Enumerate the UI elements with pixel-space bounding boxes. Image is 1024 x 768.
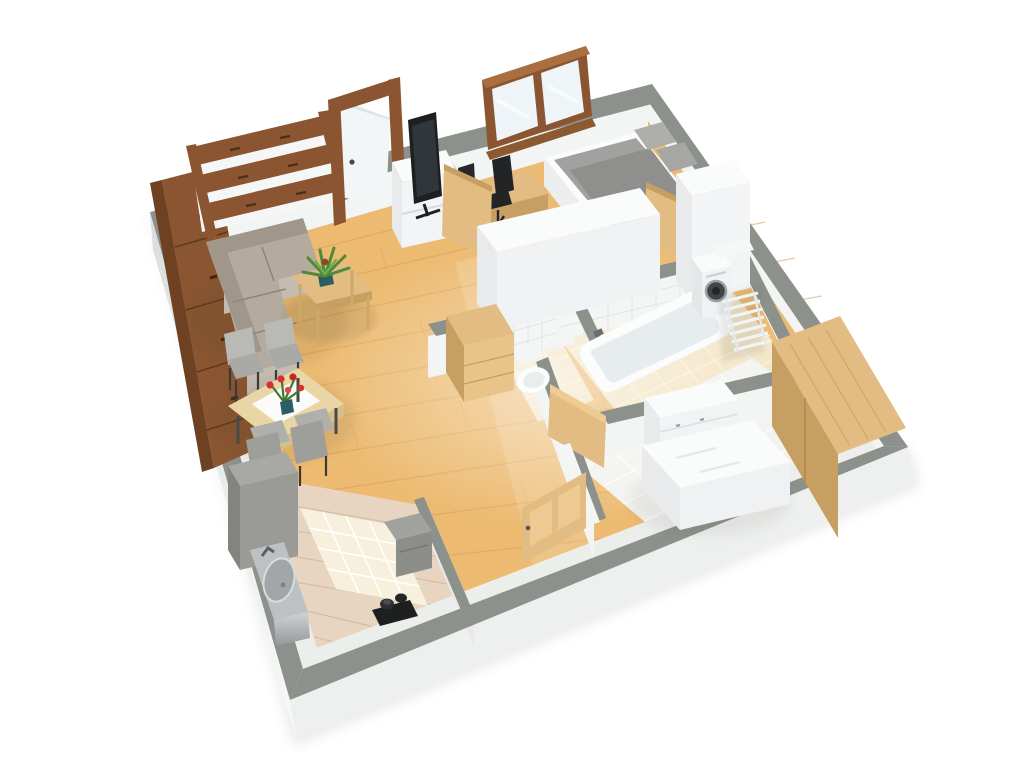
screenshot-root: [0, 0, 1024, 768]
appliance-pot: [395, 593, 407, 602]
plant-bloom: [322, 259, 329, 266]
sideboard-front: [464, 334, 514, 402]
hall-sideboard: [446, 304, 514, 402]
flower: [289, 373, 296, 380]
appliance-pot-highlight: [383, 599, 391, 604]
washer-door-glass: [712, 287, 720, 295]
sink-drain: [281, 583, 286, 588]
flower: [298, 385, 304, 391]
entry-door-panel: [340, 104, 390, 204]
flower: [277, 375, 284, 382]
floor-plan-svg: [0, 0, 1024, 768]
flower: [266, 381, 273, 388]
chair-back: [290, 420, 328, 464]
white-cabinet-side: [676, 174, 692, 302]
bedroom-door-handle: [526, 526, 531, 531]
entry-door-handle: [349, 159, 354, 164]
flower: [285, 387, 291, 393]
